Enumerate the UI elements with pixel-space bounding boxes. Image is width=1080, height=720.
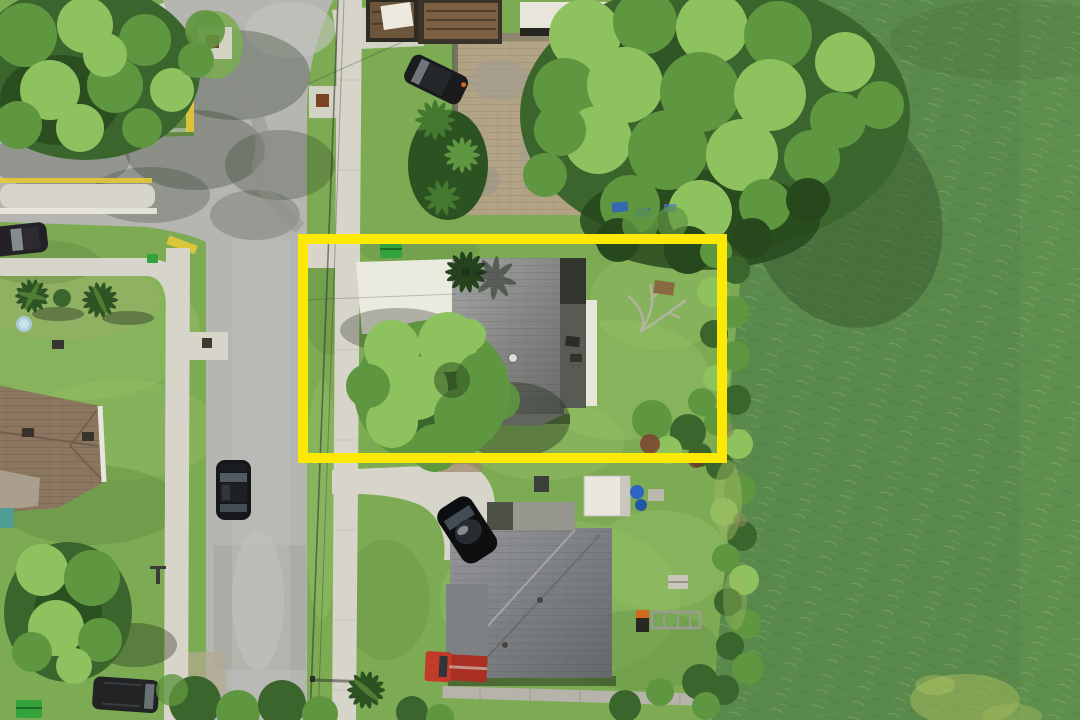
blue-barrel	[635, 499, 647, 511]
roof-vent	[509, 354, 518, 363]
lawn-mower	[52, 340, 64, 349]
small-green-bin	[147, 254, 158, 263]
red-pickup	[424, 651, 487, 684]
teal-awning	[0, 508, 14, 528]
subject-apron	[306, 241, 360, 268]
white-stripe	[0, 208, 157, 214]
aerial-photo	[0, 0, 1080, 720]
patio-roof-edge	[586, 300, 597, 406]
yellow-stripe	[0, 178, 152, 183]
patio-furniture	[565, 336, 580, 347]
bench	[653, 280, 675, 296]
dark-bin	[534, 476, 549, 492]
aerial-photo-canvas	[0, 0, 1080, 720]
minivan-bottom-left	[92, 676, 160, 714]
utility-pole	[310, 676, 315, 682]
small-shrub	[53, 289, 71, 307]
blue-barrel	[630, 485, 644, 499]
suv-on-street	[216, 460, 251, 520]
